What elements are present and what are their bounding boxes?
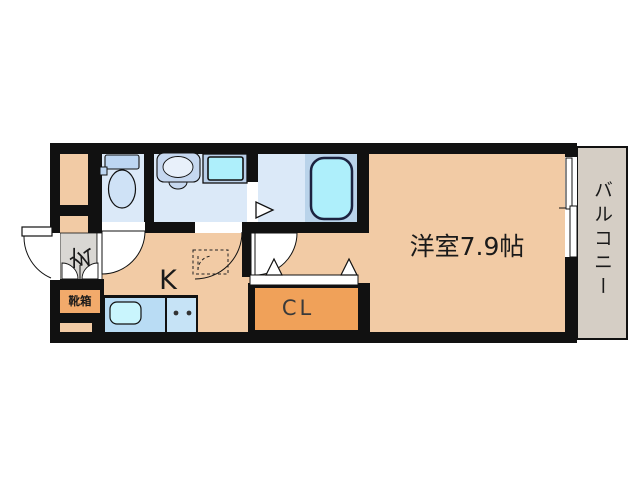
wall-top [50,143,577,154]
wall-washroom-bath [247,154,258,182]
shoe-box-label: 靴箱 [57,293,103,309]
stove-burner-icon [187,311,192,316]
wall-toilet-washroom [144,154,154,222]
kitchen-label: K [152,265,184,296]
wall-column-right [88,154,102,233]
closet-bifold-track [250,275,358,285]
washer-pan-icon [208,157,243,180]
bathtub-icon [311,158,352,219]
entrance-label: 玄 [62,242,94,274]
entrance-door-leaf [22,227,52,236]
stove-burner-icon [174,311,179,316]
floor-plan: 洋室7.9帖 K CL 玄 靴箱 バルコニー [0,0,638,480]
kitchen-counter-stove-section [167,298,196,332]
entrance-opening [50,233,60,280]
entrance-door-arc [24,236,51,278]
wall-bath-mainroom [357,154,369,233]
wall-left-upper [50,143,60,233]
main-room-label: 洋室7.9帖 [367,227,567,263]
toilet-tank-icon [105,155,139,169]
wall-hall-1 [145,222,195,233]
porch-strip [60,323,92,332]
washroom-door-opening [195,222,242,233]
closet-label: CL [270,296,326,320]
window-pane [566,158,572,209]
toilet-flush-handle-icon [100,167,107,175]
wall-kitchen-closet [242,233,251,277]
wall-hall-2 [242,222,369,233]
kitchen-sink-icon [110,302,141,324]
window-pane [570,206,577,257]
balcony-label: バルコニー [589,180,616,320]
sink-basin-icon [163,157,193,178]
toilet-bowl-icon [109,170,136,208]
